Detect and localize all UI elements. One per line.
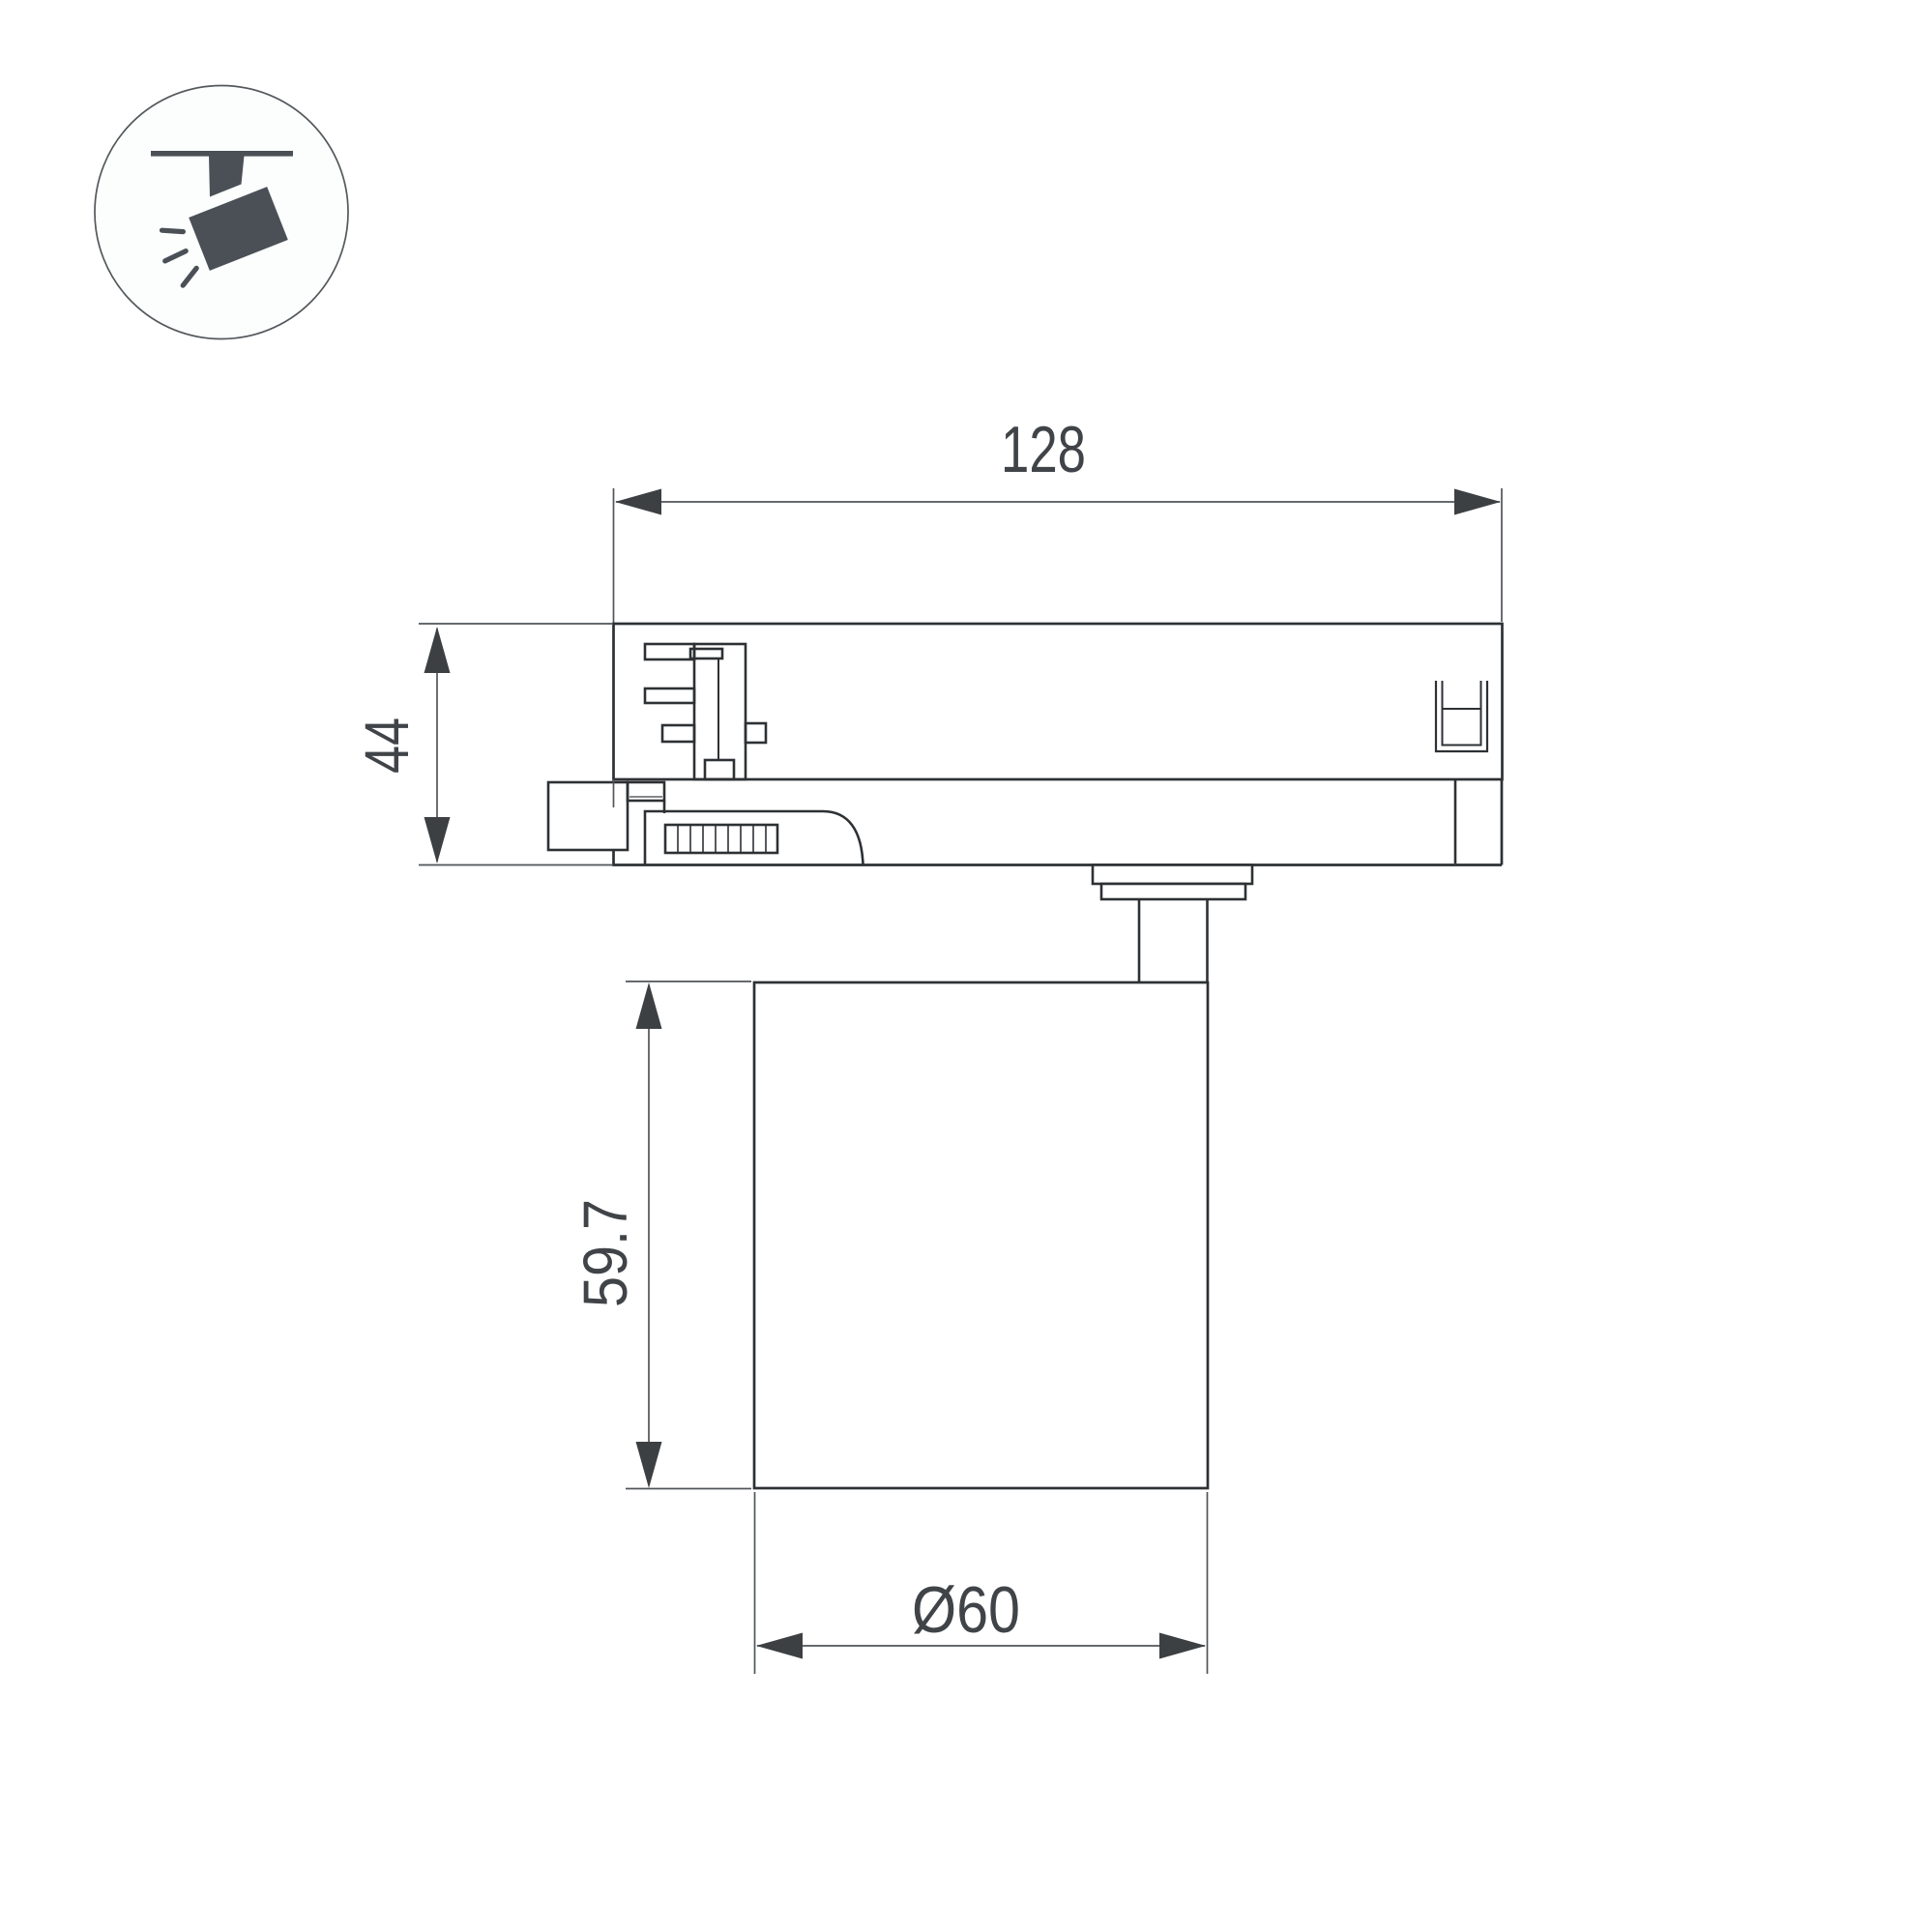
svg-text:59.7: 59.7 (571, 1199, 640, 1307)
svg-text:44: 44 (352, 717, 422, 774)
svg-text:128: 128 (1001, 413, 1086, 486)
svg-text:Ø60: Ø60 (912, 1573, 1020, 1647)
